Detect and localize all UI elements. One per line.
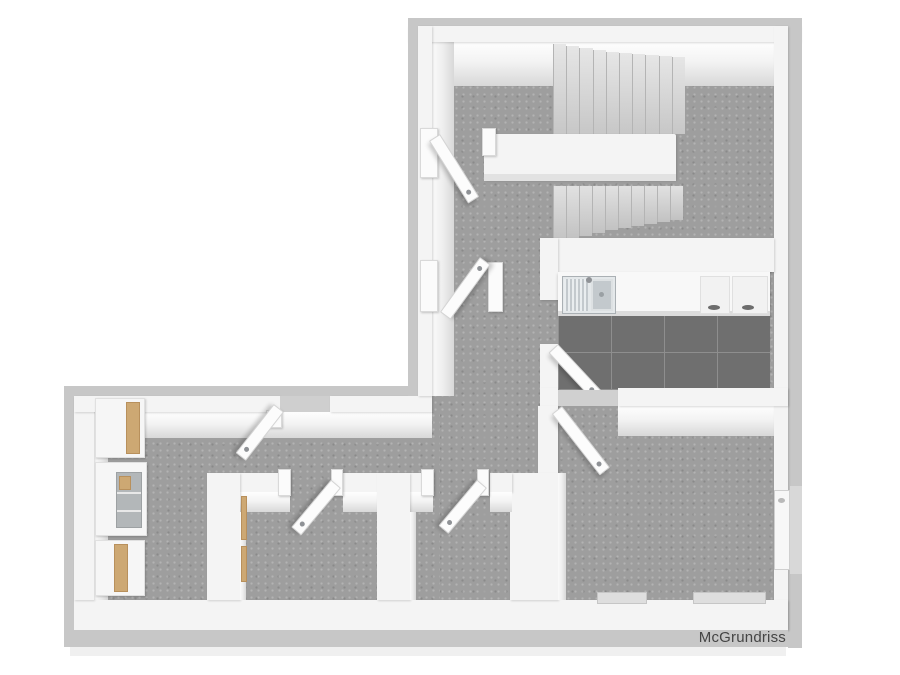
plumbing-wall-thick xyxy=(510,473,558,600)
living-room-top-wall-left-seg xyxy=(540,388,558,406)
closet-shelf-line xyxy=(117,492,141,494)
stair-step xyxy=(619,53,632,134)
door-handle-icon xyxy=(465,189,472,196)
outer-wall-top-band xyxy=(408,18,800,26)
unit-handle-icon xyxy=(742,305,754,310)
room-divider-wall-2 xyxy=(377,473,410,600)
sink-drainboard xyxy=(564,279,588,311)
outer-wall-bottom xyxy=(74,600,788,630)
stair-step xyxy=(631,186,644,226)
entrance-threshold xyxy=(280,396,330,412)
left-wall-inner-face-right-wing xyxy=(432,42,454,396)
stair-step xyxy=(553,186,566,242)
stair-step xyxy=(657,186,670,222)
room-divider-wall-2-face xyxy=(410,512,416,600)
living-room-door-threshold xyxy=(558,390,618,406)
plumbing-wall-face xyxy=(558,473,566,600)
stair-step xyxy=(618,186,631,228)
kitchen-top-wall xyxy=(540,238,774,272)
wood-trim-room-a-2 xyxy=(241,546,247,582)
outer-wall-top-bottom-wing-right-seg xyxy=(330,396,432,412)
stair-step xyxy=(659,56,672,134)
closet-unit-1-front xyxy=(126,402,140,454)
stair-upper-flight xyxy=(553,44,685,134)
stair-step xyxy=(632,54,645,134)
stair-step xyxy=(579,186,592,236)
stair-step xyxy=(672,57,685,134)
hall-door-1-jamb-right xyxy=(482,128,496,156)
wood-trim-room-a-1 xyxy=(241,496,247,540)
window-bottom-wall-2 xyxy=(693,592,766,604)
stair-step xyxy=(579,48,592,134)
door-handle-icon xyxy=(596,460,603,467)
hall-door-2-jamb xyxy=(420,260,438,312)
stair-step xyxy=(605,186,618,230)
stair-step xyxy=(592,186,605,233)
closet-shelf-item xyxy=(119,476,131,490)
floor-plan-canvas: McGrundriss xyxy=(0,0,900,675)
room-divider-wall-1 xyxy=(207,473,240,600)
unit-handle-icon xyxy=(708,305,720,310)
door-handle-icon xyxy=(243,446,250,453)
living-room-top-wall-face xyxy=(618,406,774,436)
watermark-label: McGrundriss xyxy=(560,629,786,646)
door-handle-icon xyxy=(299,521,306,528)
stair-step xyxy=(566,186,579,239)
outer-wall-left-band xyxy=(64,386,74,647)
closet-unit-3-front xyxy=(114,544,128,592)
closet-shelf-line xyxy=(117,510,141,512)
faucet-icon xyxy=(586,277,592,283)
sink-drain-icon xyxy=(599,292,604,297)
stair-step xyxy=(566,46,579,134)
stair-step xyxy=(553,44,566,134)
room-b-door-jamb-left xyxy=(421,469,434,496)
window-bottom-wall-1 xyxy=(597,592,647,604)
window-right-outer-sill xyxy=(790,486,802,574)
stair-landing-wall-face xyxy=(484,174,676,181)
hall-door-2-jamb-right xyxy=(488,262,503,312)
living-room-top-wall-right-seg xyxy=(618,388,788,406)
stair-step xyxy=(644,186,657,224)
stair-step xyxy=(670,186,683,220)
stair-lower-flight xyxy=(553,186,683,242)
partition-wall-seg-3-face xyxy=(490,492,512,512)
outer-wall-left-band-right-wing xyxy=(408,18,418,396)
room-a-door-jamb-left xyxy=(278,469,291,496)
outer-wall-left xyxy=(74,396,94,600)
outer-wall-top-band-bottom-wing xyxy=(64,386,410,396)
outer-wall-left-right-wing xyxy=(418,26,432,396)
stair-step xyxy=(606,52,619,134)
kitchen-left-wall-upper xyxy=(540,238,558,300)
outer-wall-top xyxy=(408,26,800,42)
door-handle-icon xyxy=(476,265,483,272)
stair-step xyxy=(593,50,606,134)
outer-wall-bottom-skirt xyxy=(70,647,786,656)
partition-wall-seg-3 xyxy=(490,473,512,492)
door-handle-icon xyxy=(446,519,453,526)
stair-step xyxy=(645,55,658,134)
window-latch-icon xyxy=(778,498,785,503)
